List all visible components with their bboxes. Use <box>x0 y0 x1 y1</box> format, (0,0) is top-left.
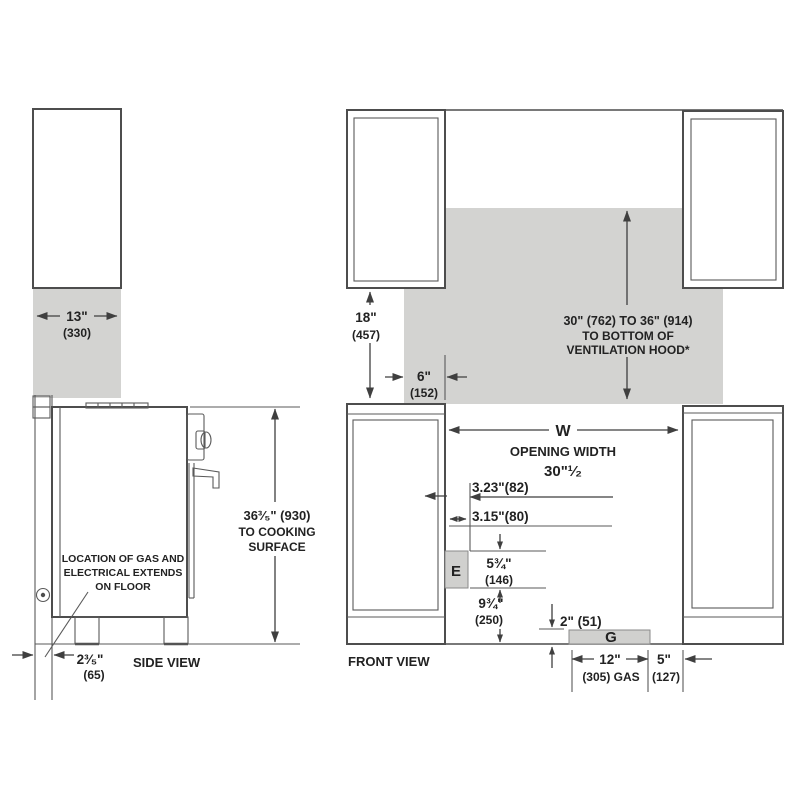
gas-note-line-3: ON FLOOR <box>95 581 151 593</box>
opening-label: OPENING WIDTH <box>510 444 616 459</box>
splash-value: 6" <box>417 369 431 384</box>
base-cabinet-left <box>347 404 445 644</box>
offset-b-value: 3.15"(80) <box>472 509 529 524</box>
gas-note-line-2: ELECTRICAL EXTENDS <box>64 567 183 579</box>
range-foot-left <box>75 617 99 644</box>
gas-note-line-1: LOCATION OF GAS AND <box>62 553 185 565</box>
gas-outlet-dot-icon <box>41 593 45 597</box>
side-view-label: SIDE VIEW <box>133 655 201 670</box>
gas-width-value: 12" <box>599 652 620 667</box>
height-caption-1: TO COOKING <box>238 525 315 539</box>
range-foot-right <box>164 617 188 644</box>
hood-shaded-area-upper <box>445 208 683 289</box>
gas-offset-mm: (127) <box>652 670 680 684</box>
electrical-box-label: E <box>451 563 461 580</box>
hood-value: 30" (762) TO 36" (914) <box>563 314 692 328</box>
cabinet-depth-value: 13" <box>66 309 87 324</box>
height-value: 36³⁄₅" (930) <box>243 508 310 523</box>
wall-gap-mm: (65) <box>83 668 104 682</box>
gas-width-mm: (305) GAS <box>582 670 639 684</box>
elec-floor-mm: (250) <box>475 613 503 627</box>
control-knob-icon <box>201 432 211 448</box>
opening-symbol: W <box>555 423 571 440</box>
side-view: 13" (330) <box>12 109 316 700</box>
front-view-label: FRONT VIEW <box>348 654 430 669</box>
side-upper-cabinet <box>33 109 121 288</box>
gas-offset-value: 5" <box>657 652 671 667</box>
elec-height-value: 5¾" <box>486 556 511 571</box>
hood-caption-2: VENTILATION HOOD* <box>566 343 689 357</box>
upper-cabinet-left <box>347 110 445 288</box>
upper-cabinet-right <box>683 111 783 288</box>
hood-caption-1: TO BOTTOM OF <box>582 329 674 343</box>
diagram-canvas: 13" (330) <box>0 0 800 800</box>
gas-height-value: 2" (51) <box>560 614 602 629</box>
door-handle-profile <box>193 468 219 488</box>
elec-floor-value: 9¾" <box>478 596 503 611</box>
upper-gap-mm: (457) <box>352 328 380 342</box>
side-wall-shaded-area <box>33 288 121 398</box>
front-view: 18" (457) 6" (152) 30" (762) TO 36" (914… <box>347 110 783 692</box>
offset-a-value: 3.23"(82) <box>472 480 529 495</box>
wall-gap-value: 2³⁄₅" <box>77 652 104 667</box>
installation-diagram-page: 13" (330) <box>0 0 800 800</box>
opening-value: 30"¹⁄₂ <box>544 463 582 480</box>
upper-gap-value: 18" <box>355 310 376 325</box>
gas-box-label: G <box>605 629 617 646</box>
height-caption-2: SURFACE <box>248 540 305 554</box>
splash-mm: (152) <box>410 386 438 400</box>
elec-height-mm: (146) <box>485 573 513 587</box>
cabinet-depth-mm: (330) <box>63 326 91 340</box>
